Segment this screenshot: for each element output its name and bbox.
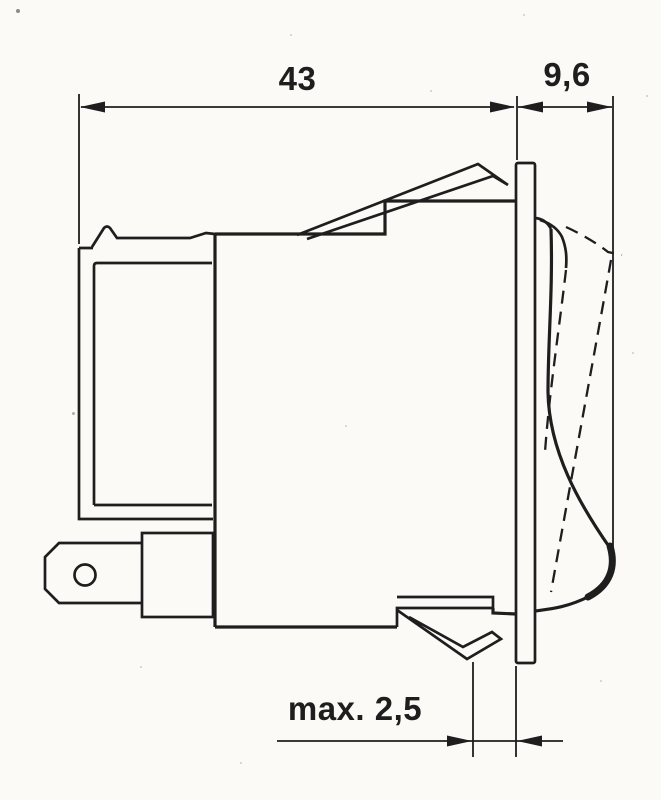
rocker-cap-dashed-positions xyxy=(545,227,622,592)
terminal-hole xyxy=(75,565,96,586)
rocker-front-face xyxy=(548,229,610,548)
rocker-top-inner-edge xyxy=(540,220,566,268)
dimension-label-bezel-depth: 9,6 xyxy=(519,58,615,91)
housing-main-body xyxy=(215,201,516,627)
arrowhead-left xyxy=(80,102,105,113)
housing-left-box-outer xyxy=(79,248,213,519)
terminal-group xyxy=(45,533,213,617)
rocker-switch-side-view-drawing xyxy=(0,0,661,800)
switch-housing xyxy=(79,201,516,627)
arrowhead-to-flange xyxy=(517,736,542,747)
housing-top-ridge-and-bump xyxy=(79,227,215,249)
mounting-flange xyxy=(516,163,535,663)
rocker-bottom-return xyxy=(535,596,590,611)
rocker-lower-bend xyxy=(588,546,612,597)
bottom-clip-bar xyxy=(397,597,493,627)
rocker-cap-solid xyxy=(535,218,612,611)
housing-left-box-inner xyxy=(94,263,212,505)
dimension-label-overall-length: 43 xyxy=(250,62,345,95)
technical-drawing-page: 43 9,6 max. 2,5 xyxy=(0,0,661,800)
rocker-dashed-front-face xyxy=(551,260,611,592)
bottom-snap-clip xyxy=(397,597,516,659)
dimension-line-panel-thickness xyxy=(277,736,563,747)
terminal-block xyxy=(142,533,213,617)
arrowhead-left xyxy=(518,102,543,113)
dimension-line-bezel-depth xyxy=(518,102,612,113)
arrowhead-right xyxy=(490,102,515,113)
dimension-label-panel-thickness: max. 2,5 xyxy=(262,692,448,725)
spade-terminal xyxy=(45,543,142,603)
dimension-line-overall-length xyxy=(80,102,515,113)
arrowhead-right xyxy=(587,102,612,113)
bottom-clip-bar-to-flange xyxy=(493,608,516,614)
bottom-clip-barb xyxy=(397,610,501,659)
arrowhead-to-clip xyxy=(447,736,472,747)
